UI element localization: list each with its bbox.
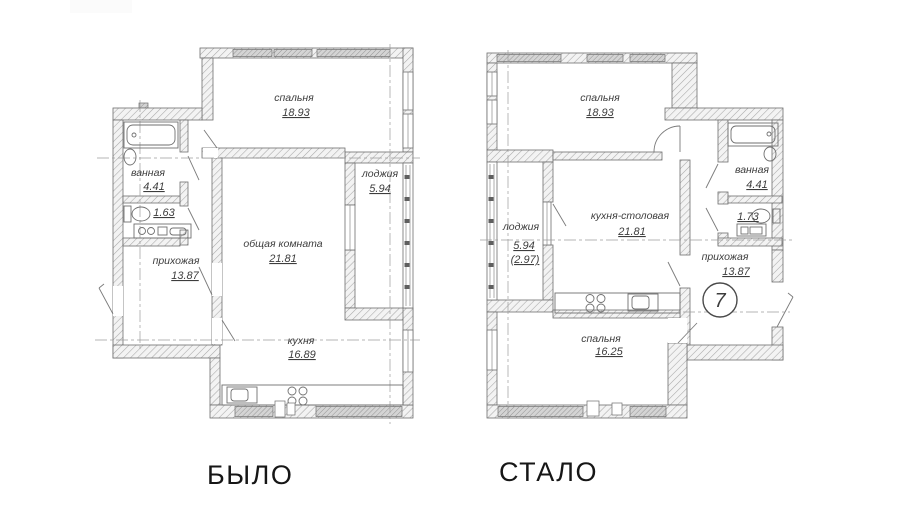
room-area: 21.81 — [617, 226, 646, 238]
room-area: 5.94 — [369, 183, 390, 195]
room-label: спальня — [580, 92, 620, 104]
bathtub-icon — [124, 122, 178, 148]
unit-number-badge: 7 — [703, 283, 737, 317]
room-label: спальня — [581, 333, 621, 345]
caption-before: БЫЛО — [207, 460, 293, 491]
room-label: лоджия — [502, 221, 540, 233]
floorplans-drawing: спальня 18.93 ванная 4.41 1.63 прихожая … — [0, 0, 900, 460]
floorplan-after: 7 спальня 18.93 ванная 4.41 1.73 лоджия … — [480, 50, 795, 420]
room-area: 13.87 — [171, 270, 199, 282]
room-label: спальня — [274, 92, 314, 104]
room-area: 18.93 — [586, 107, 614, 119]
room-label: лоджия — [361, 168, 399, 180]
room-area: 18.93 — [282, 107, 310, 119]
room-label: ванная — [131, 167, 165, 179]
room-labels-before: спальня 18.93 ванная 4.41 1.63 прихожая … — [131, 92, 399, 361]
room-area: (2.97) — [511, 254, 540, 266]
room-label: прихожая — [702, 251, 749, 263]
room-label: кухня-столовая — [591, 210, 670, 222]
room-area: 4.41 — [143, 181, 164, 193]
sink-icon — [124, 149, 136, 165]
room-area: 16.25 — [595, 346, 623, 358]
room-area: 1.73 — [737, 211, 759, 223]
room-area: 21.81 — [268, 253, 297, 265]
room-label: кухня — [288, 335, 315, 347]
room-area: 13.87 — [722, 266, 750, 278]
bathtub-icon — [728, 123, 778, 146]
room-label: ванная — [735, 164, 769, 176]
toilet-icon — [124, 206, 150, 222]
room-area: 4.41 — [746, 179, 767, 191]
room-label: прихожая — [153, 255, 200, 267]
caption-after: СТАЛО — [499, 457, 598, 488]
room-area: 1.63 — [153, 207, 175, 219]
room-label: общая комната — [243, 238, 322, 250]
vanity-icon — [737, 224, 766, 236]
floorplan-page: спальня 18.93 ванная 4.41 1.63 прихожая … — [0, 0, 900, 506]
unit-number: 7 — [714, 290, 726, 312]
room-area: 16.89 — [288, 349, 316, 361]
room-area: 5.94 — [513, 240, 534, 252]
